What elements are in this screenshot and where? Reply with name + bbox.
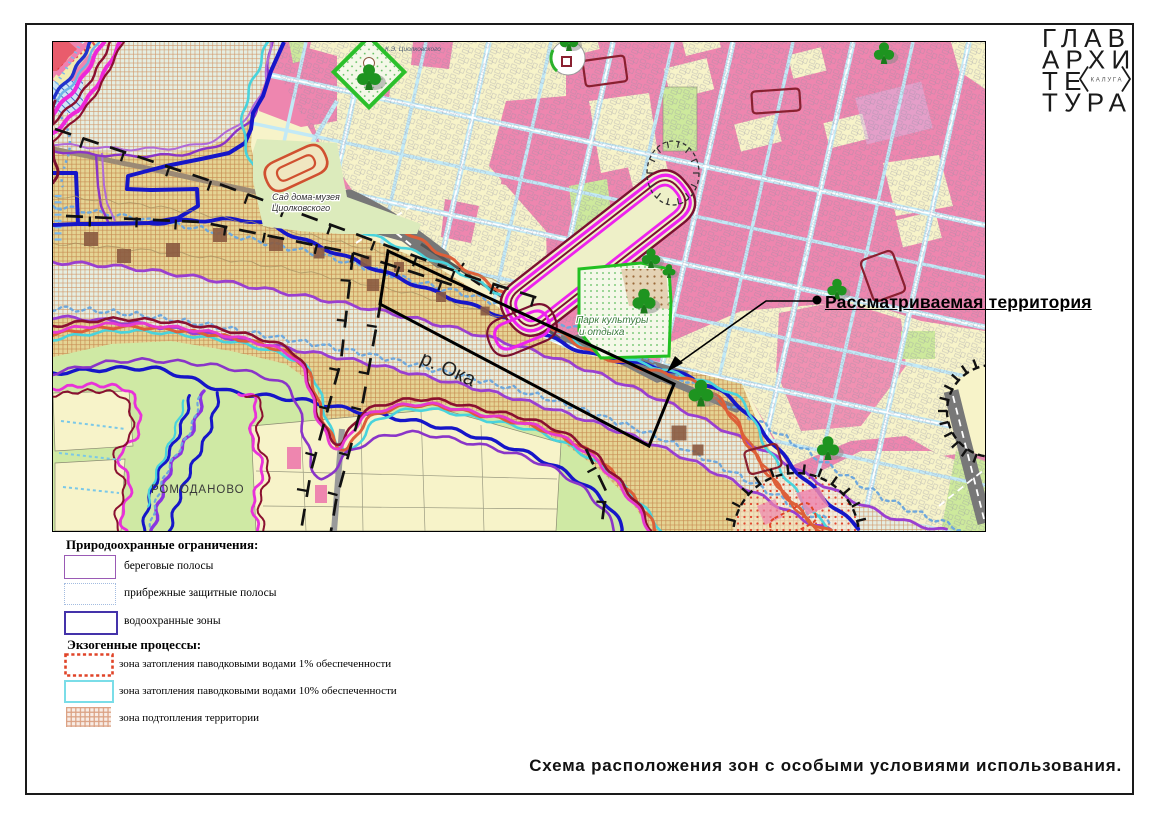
svg-text:КАЛУГА: КАЛУГА bbox=[1091, 77, 1124, 84]
svg-text:и отдыха: и отдыха bbox=[579, 327, 625, 338]
svg-text:РОМОДАНОВО: РОМОДАНОВО bbox=[151, 484, 245, 496]
svg-text:Парк культуры: Парк культуры bbox=[576, 315, 649, 326]
svg-text:ТУРА: ТУРА bbox=[1042, 88, 1132, 117]
svg-text:Сад дома-музея: Сад дома-музея bbox=[272, 192, 340, 202]
svg-text:К.Э. Циолковского: К.Э. Циолковского bbox=[385, 46, 441, 53]
svg-text:Циолковского: Циолковского bbox=[272, 203, 330, 213]
